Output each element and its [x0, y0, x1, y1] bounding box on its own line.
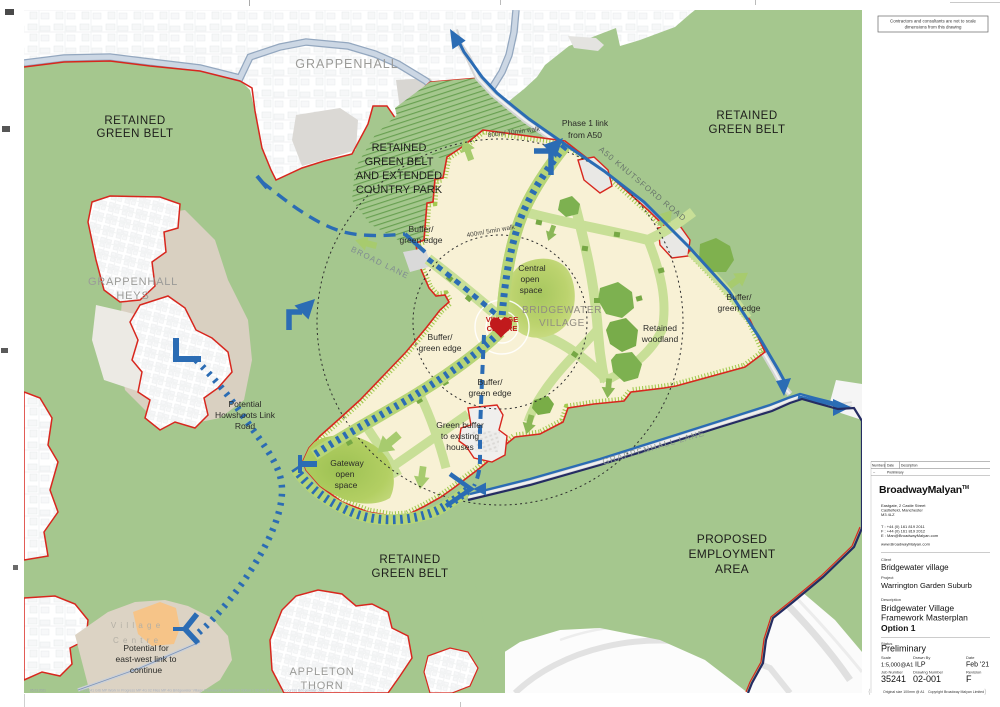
svg-text:Gateway: Gateway [330, 458, 364, 468]
svg-text:Drawn By: Drawn By [913, 655, 930, 660]
svg-text:--: -- [873, 471, 875, 475]
svg-text:Preliminary: Preliminary [881, 644, 927, 654]
svg-text:GREEN BELT: GREEN BELT [97, 128, 174, 140]
svg-text:Framework Masterplan: Framework Masterplan [881, 613, 968, 623]
svg-text:east-west link to: east-west link to [116, 654, 177, 664]
svg-text:GREEN BELT: GREEN BELT [365, 156, 434, 168]
svg-text:35241: 35241 [881, 674, 906, 684]
svg-text:Description: Description [901, 464, 918, 468]
svg-text:continue: continue [130, 665, 162, 675]
svg-text:BroadwayMalyanTM: BroadwayMalyanTM [879, 484, 969, 496]
svg-text:02-001: 02-001 [913, 674, 941, 684]
svg-text:Date: Date [966, 655, 975, 660]
svg-text:green edge: green edge [399, 235, 442, 245]
svg-text:Client: Client [881, 557, 892, 562]
svg-text:Buffer/: Buffer/ [428, 332, 454, 342]
svg-text:VILLAGE: VILLAGE [539, 318, 585, 329]
svg-text:⟩: ⟩ [984, 688, 987, 696]
svg-text:Potential: Potential [228, 399, 261, 409]
svg-text:05.03.2021: 05.03.2021 [30, 689, 46, 693]
svg-text:APPLETON: APPLETON [290, 666, 355, 678]
svg-text:green edge: green edge [468, 388, 511, 398]
svg-text:from A50: from A50 [568, 130, 602, 140]
svg-text:GREEN BELT: GREEN BELT [372, 568, 449, 580]
svg-text:VILLAGE: VILLAGE [486, 315, 519, 324]
svg-text:HEYS: HEYS [116, 290, 149, 302]
svg-text:to existing: to existing [441, 431, 480, 441]
svg-text:dimensions from this drawing: dimensions from this drawing [905, 25, 962, 30]
svg-text:AND EXTENDED: AND EXTENDED [356, 170, 442, 182]
svg-text:⟨: ⟨ [868, 688, 871, 696]
svg-text:Buffer/: Buffer/ [409, 224, 435, 234]
svg-text:Option 1: Option 1 [881, 623, 916, 633]
svg-text:Description: Description [881, 597, 901, 602]
svg-text:Project: Project [881, 575, 894, 580]
svg-text:CENTRE: CENTRE [487, 324, 518, 333]
svg-text:Road: Road [235, 421, 256, 431]
svg-text:GRAPPENHALL: GRAPPENHALL [295, 57, 398, 71]
svg-text:C e n t r e: C e n t r e [113, 636, 159, 645]
svg-text:AREA: AREA [715, 562, 749, 576]
svg-text:Bridgewater village: Bridgewater village [881, 563, 949, 572]
svg-text:Original size 100mm @ A1: Original size 100mm @ A1 [883, 690, 925, 694]
svg-text:Date: Date [887, 464, 894, 468]
svg-text:Contractors and consultants ar: Contractors and consultants are not to s… [890, 19, 976, 24]
svg-text:RETAINED: RETAINED [104, 115, 165, 127]
svg-text:PROPOSED: PROPOSED [697, 532, 767, 546]
svg-text:green edge: green edge [717, 303, 760, 313]
svg-text:open: open [521, 274, 540, 284]
svg-text:Copyright Broadway Malyan Limi: Copyright Broadway Malyan Limited [928, 690, 984, 694]
svg-text:M3 4LZ: M3 4LZ [881, 512, 895, 517]
svg-text:Warrington Garden Suburb: Warrington Garden Suburb [881, 581, 972, 590]
svg-text:V i l l a g e: V i l l a g e [111, 621, 161, 630]
svg-text:Retained: Retained [643, 323, 677, 333]
svg-text:RETAINED: RETAINED [716, 110, 777, 122]
svg-text:woodland: woodland [641, 334, 679, 344]
svg-text:houses: houses [446, 442, 473, 452]
svg-text:Green buffer: Green buffer [436, 420, 484, 430]
svg-text:P:\35241 GIS MP Work In Progre: P:\35241 GIS MP Work In Progress MP 4G 0… [80, 689, 324, 693]
svg-text:space: space [520, 285, 543, 295]
svg-text:open: open [336, 469, 355, 479]
svg-text:Howshoots Link: Howshoots Link [215, 410, 276, 420]
svg-text:GREEN BELT: GREEN BELT [709, 124, 786, 136]
svg-text:www.BroadwayMalyan.com: www.BroadwayMalyan.com [881, 542, 931, 547]
svg-text:Central: Central [518, 263, 546, 273]
svg-text:space: space [335, 480, 358, 490]
svg-text:EMPLOYMENT: EMPLOYMENT [688, 547, 775, 561]
svg-text:RETAINED: RETAINED [379, 554, 440, 566]
svg-text:Buffer/: Buffer/ [478, 377, 504, 387]
svg-text:Buffer/: Buffer/ [727, 292, 753, 302]
svg-text:RETAINED: RETAINED [372, 142, 427, 154]
svg-text:1:5,000@A1: 1:5,000@A1 [881, 663, 913, 669]
svg-text:Phase 1 link: Phase 1 link [562, 118, 609, 128]
svg-text:Preliminary: Preliminary [887, 471, 904, 475]
svg-text:Bridgewater Village: Bridgewater Village [881, 603, 954, 613]
svg-text:Feb '21: Feb '21 [966, 662, 989, 669]
svg-text:E : Man@BroadwayMalyan.com: E : Man@BroadwayMalyan.com [881, 533, 939, 538]
svg-text:COUNTRY PARK: COUNTRY PARK [356, 184, 443, 196]
svg-text:Numbers: Numbers [872, 464, 886, 468]
svg-text:ILP: ILP [915, 662, 926, 669]
svg-text:green edge: green edge [418, 343, 461, 353]
svg-text:F: F [966, 674, 972, 684]
svg-text:Scale: Scale [881, 655, 892, 660]
svg-text:BRIDGEWATER: BRIDGEWATER [522, 305, 602, 316]
svg-text:GRAPPENHALL: GRAPPENHALL [88, 276, 178, 288]
